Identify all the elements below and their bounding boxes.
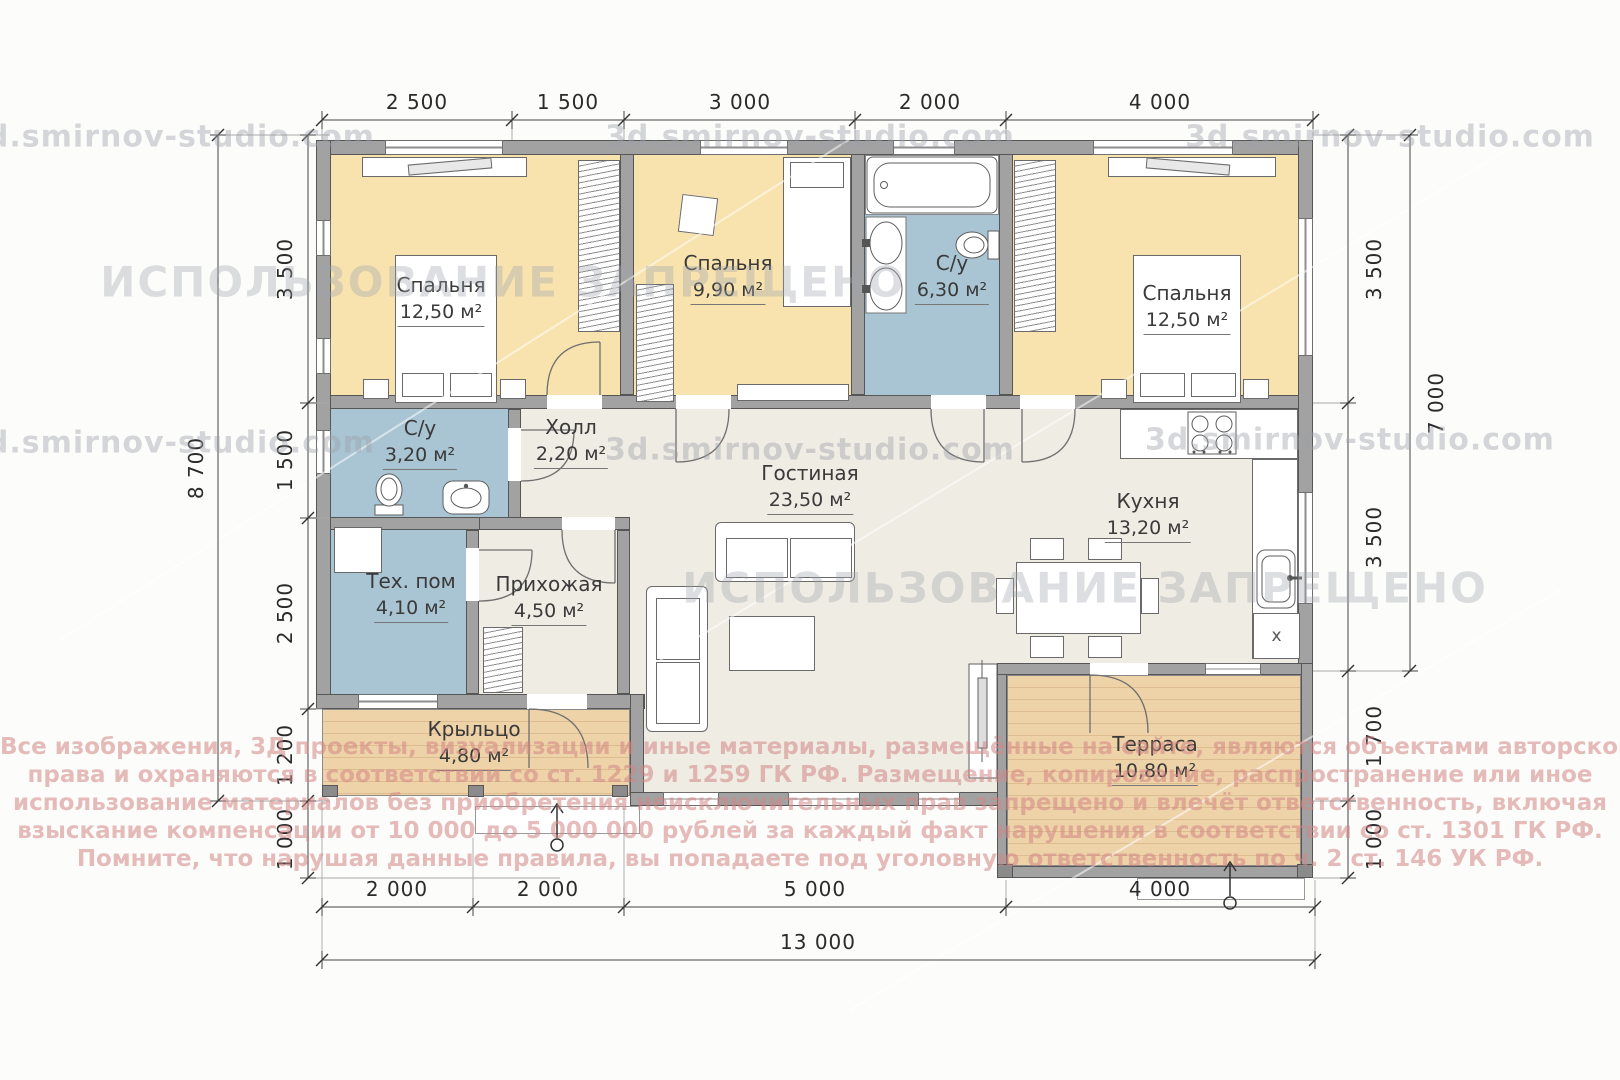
dim-label: 5 000 — [784, 877, 846, 901]
copyright-line: взыскание компенсации от 10 000 до 5 000… — [0, 818, 1620, 844]
dim-label-total: 13 000 — [780, 930, 856, 954]
site-watermark: 3d.smirnov-studio.com — [0, 426, 375, 461]
room-area: 2,20 м² — [534, 441, 608, 469]
dim-label: 4 000 — [1129, 90, 1191, 114]
floor-plan-page: х — [0, 0, 1620, 1080]
copyright-line: Все изображения, 3Д проекты, визуализаци… — [0, 734, 1620, 760]
room-label-bath-main: С/у 6,30 м² — [915, 250, 989, 305]
room-name: С/у — [383, 415, 457, 441]
dim-label: 3 500 — [1362, 238, 1386, 300]
room-label-hall: Холл 2,20 м² — [534, 414, 608, 469]
copyright-line: права и охраняются в соответствии со ст.… — [0, 762, 1620, 788]
copyright-line: использование материалов без приобретени… — [0, 790, 1620, 816]
room-label-tech: Тех. пом 4,10 м² — [366, 568, 455, 623]
toilet-icon — [375, 474, 403, 515]
bathtub-icon — [867, 157, 997, 213]
site-watermark: 3d.smirnov-studio.com — [605, 120, 1015, 155]
dim-label: 1 500 — [537, 90, 599, 114]
usage-forbidden-watermark: ИСПОЛЬЗОВАНИЕ ЗАПРЕЩЕНО — [682, 564, 1488, 613]
room-area: 12,50 м² — [1144, 307, 1230, 335]
dim-label: 3 500 — [1362, 506, 1386, 568]
fireplace-icon — [969, 660, 997, 778]
dim-label: 4 000 — [1129, 877, 1191, 901]
dim-label: 2 500 — [386, 90, 448, 114]
room-name: Кухня — [1105, 488, 1191, 514]
site-watermark: 3d.smirnov-studio.com — [1145, 423, 1555, 458]
room-area: 4,50 м² — [512, 598, 586, 626]
site-watermark: 3d.smirnov-studio.com — [1185, 120, 1595, 155]
washing-machine: х — [1253, 613, 1300, 659]
room-area: 6,30 м² — [915, 277, 989, 305]
copyright-line: Помните, что нарушая данные правила, вы … — [0, 846, 1620, 872]
room-name: С/у — [915, 250, 989, 276]
dim-label: 2 500 — [273, 582, 297, 644]
dim-label: 2 000 — [517, 877, 579, 901]
room-name: Прихожая — [495, 571, 602, 597]
room-area: 3,20 м² — [383, 442, 457, 470]
washer-mark: х — [1271, 626, 1281, 646]
door-arcs — [479, 342, 1148, 768]
dim-label: 2 000 — [366, 877, 428, 901]
dim-label: 2 000 — [899, 90, 961, 114]
room-name: Холл — [534, 414, 608, 440]
site-watermark: 3d.smirnov-studio.com — [0, 120, 375, 155]
room-area: 13,20 м² — [1105, 515, 1191, 543]
site-watermark: 3d.smirnov-studio.com — [605, 433, 1015, 468]
room-name: Спальня — [1143, 280, 1232, 306]
room-label-entry: Прихожая 4,50 м² — [495, 571, 602, 626]
room-label-bath-small: С/у 3,20 м² — [383, 415, 457, 470]
usage-forbidden-watermark: ИСПОЛЬЗОВАНИЕ ЗАПРЕЩЕНО — [100, 258, 906, 307]
sink-icon — [443, 481, 489, 514]
room-area: 4,10 м² — [374, 595, 448, 623]
room-name: Тех. пом — [366, 568, 455, 594]
room-label-kitchen: Кухня 13,20 м² — [1105, 488, 1191, 543]
dim-label: 3 000 — [709, 90, 771, 114]
room-label-bedroom-3: Спальня 12,50 м² — [1143, 280, 1232, 335]
room-label-living: Гостиная 23,50 м² — [761, 460, 858, 515]
room-area: 23,50 м² — [767, 487, 853, 515]
